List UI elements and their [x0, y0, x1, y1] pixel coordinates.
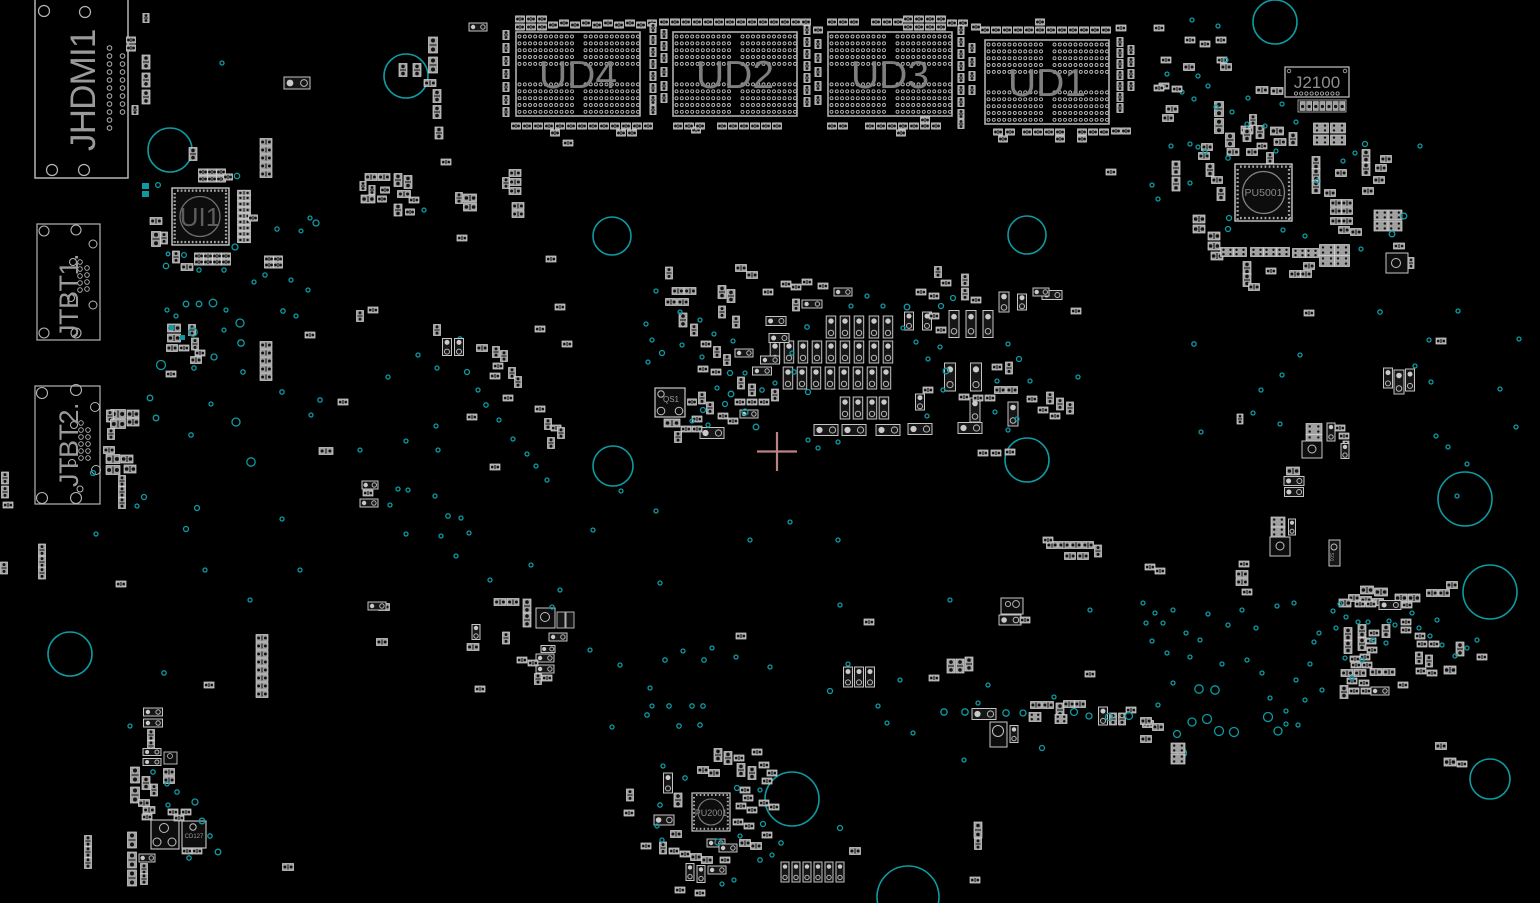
svg-text:JTBT1.: JTBT1. [54, 254, 84, 338]
svg-text:S01: S01 [1328, 553, 1334, 562]
svg-text:UD4: UD4 [539, 54, 617, 97]
svg-text:UD3: UD3 [851, 54, 929, 97]
svg-text:UI1: UI1 [180, 202, 220, 232]
svg-text:JHDMI1: JHDMI1 [64, 29, 103, 151]
svg-text:QS1: QS1 [663, 395, 680, 404]
svg-text:UD2: UD2 [696, 54, 774, 97]
svg-text:PU5001: PU5001 [1245, 187, 1283, 199]
svg-text:PU2001: PU2001 [695, 808, 728, 818]
svg-text:JTBT2.: JTBT2. [54, 403, 84, 487]
svg-text:UD1: UD1 [1008, 62, 1086, 105]
svg-text:CD127: CD127 [185, 834, 204, 840]
svg-text:J2100: J2100 [1294, 73, 1340, 92]
